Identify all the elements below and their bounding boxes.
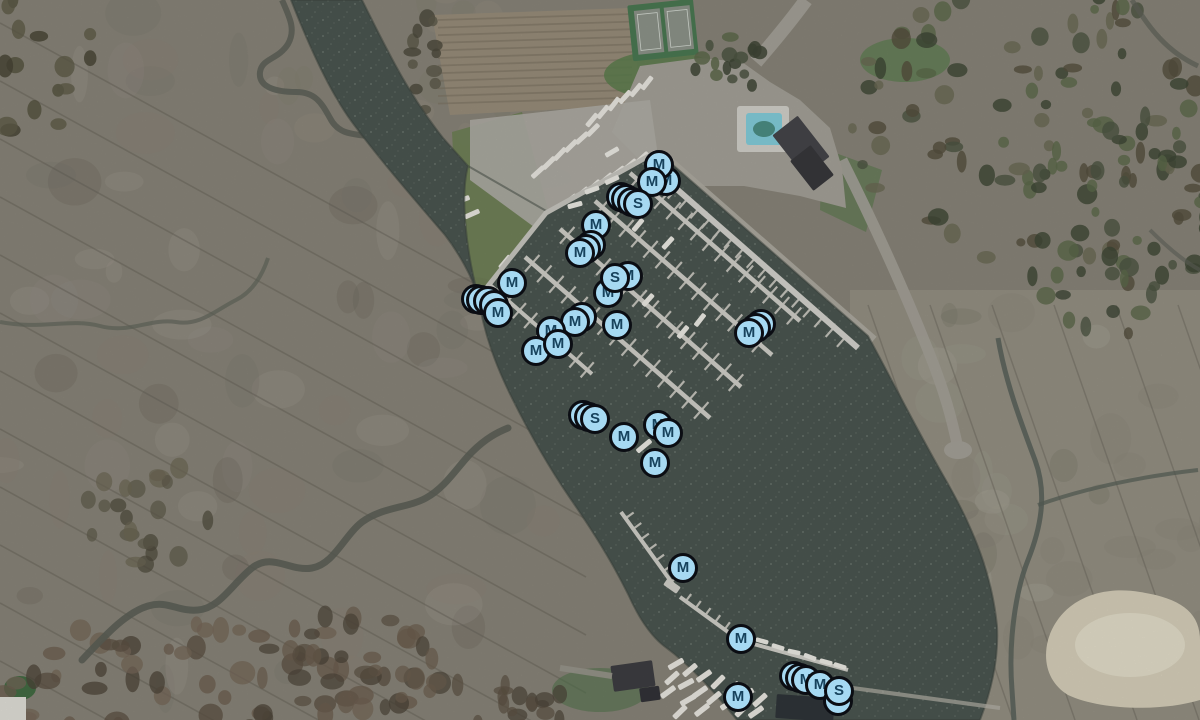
map-marker-m[interactable]: M (668, 553, 698, 583)
map-marker-s[interactable]: S (580, 404, 610, 434)
map-marker-m[interactable]: M (543, 329, 573, 359)
map-marker-m[interactable]: M (609, 422, 639, 452)
map-marker-m[interactable]: M (734, 318, 764, 348)
map-marker-m[interactable]: M (602, 310, 632, 340)
map-marker-m[interactable]: M (726, 624, 756, 654)
map-marker-m[interactable]: M (565, 238, 595, 268)
map-marker-m[interactable]: M (483, 298, 513, 328)
map-marker-s[interactable]: S (600, 263, 630, 293)
satellite-map[interactable]: MMMSMMMMMMMSMMMMMMSMMMMMMMMMS (0, 0, 1200, 720)
map-marker-s[interactable]: S (824, 676, 854, 706)
map-marker-m[interactable]: M (653, 418, 683, 448)
markers-layer: MMMSMMMMMMMSMMMMMMSMMMMMMMMMS (0, 0, 1200, 720)
map-marker-m[interactable]: M (723, 682, 753, 712)
map-marker-s[interactable]: S (623, 189, 653, 219)
map-marker-m[interactable]: M (640, 448, 670, 478)
